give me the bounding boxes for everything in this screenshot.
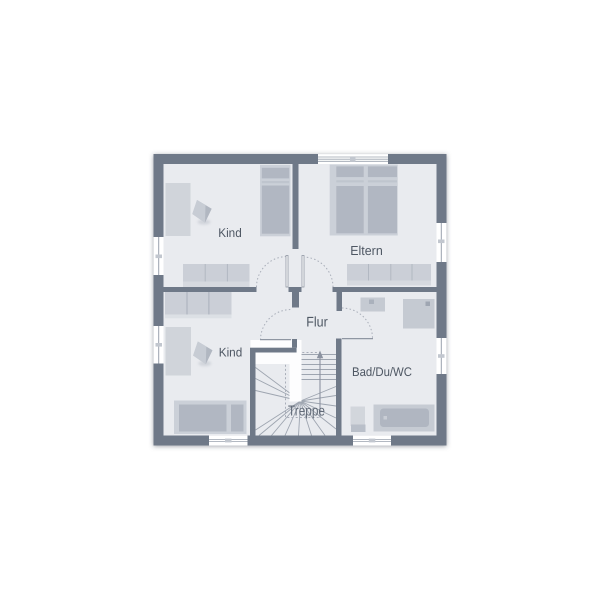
svg-text:Bad/Du/WC: Bad/Du/WC bbox=[352, 365, 412, 379]
svg-text:Flur: Flur bbox=[306, 314, 328, 330]
svg-text:Kind: Kind bbox=[219, 346, 243, 360]
svg-text:Eltern: Eltern bbox=[350, 243, 383, 258]
svg-text:Kind: Kind bbox=[218, 226, 242, 240]
svg-text:Treppe: Treppe bbox=[288, 404, 325, 420]
